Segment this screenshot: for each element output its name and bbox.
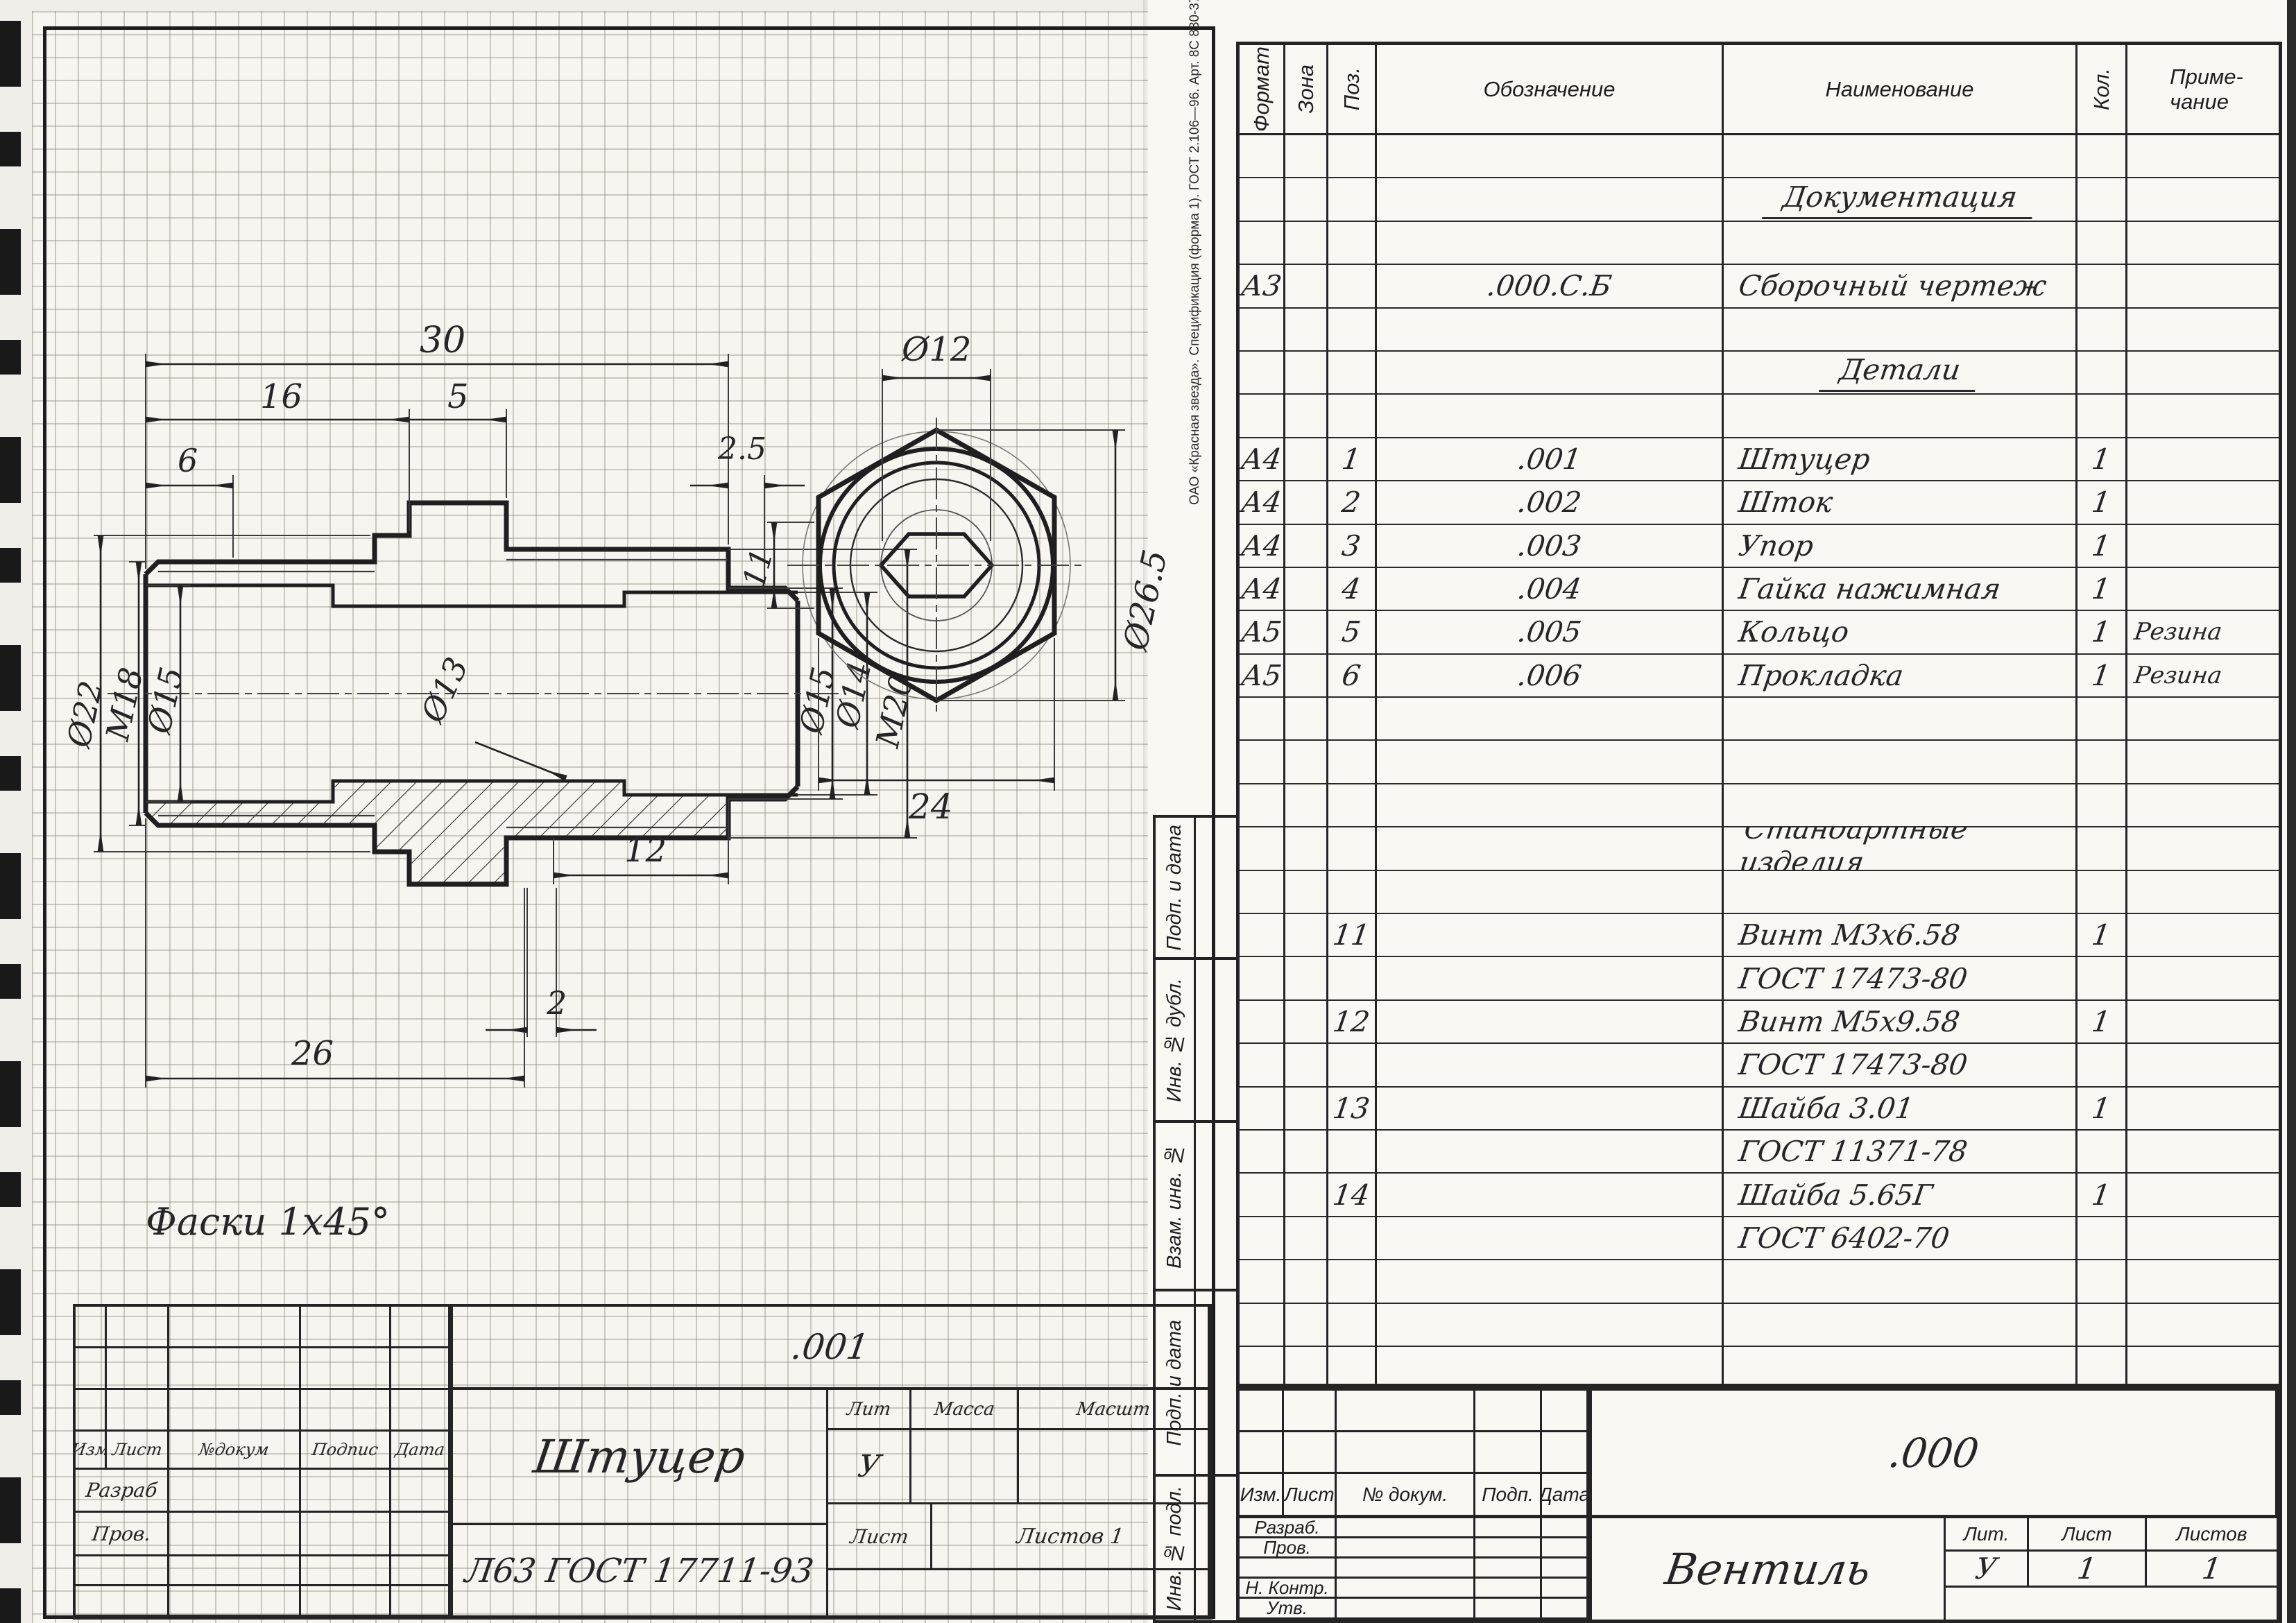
sig-row-cell	[1542, 1579, 1588, 1599]
spec-cell-designation-row12: .006	[1377, 655, 1724, 698]
lit-col-label: Лист	[2062, 1523, 2111, 1545]
spec-cell-name-row26	[1724, 1260, 2077, 1303]
lit-value: У	[828, 1430, 911, 1504]
sig-row-cell	[1337, 1518, 1475, 1538]
spec-value: 1	[2090, 443, 2113, 476]
spec-cell-format-row18	[1240, 914, 1285, 957]
spec-cell-zone-row3	[1285, 265, 1328, 308]
spec-cell-qty-row23	[2077, 1131, 2127, 1174]
spec-cell-qty-row6	[2077, 395, 2127, 438]
spec-cell-note-row25	[2127, 1217, 2282, 1260]
prop-col-label: Масса	[933, 1399, 996, 1420]
sig-col: №докум	[169, 1432, 301, 1470]
spec-cell-pos-row12: 6	[1328, 655, 1377, 698]
dimension-lines	[101, 364, 907, 1079]
spec-cell-note-row14	[2127, 741, 2282, 784]
spec-value: .003	[1515, 529, 1583, 563]
rev-cell	[301, 1348, 391, 1390]
spec-cell-zone-row1	[1285, 178, 1328, 221]
spec-cell-designation-row22	[1377, 1088, 1724, 1131]
spec-value: 1	[2090, 529, 2113, 563]
margin-label-cell: Подп. и дата	[1156, 1291, 1196, 1474]
material-cell: Л63 ГОСТ 17711-93	[450, 1525, 828, 1617]
title-block-left: ИзмЛист№докумПодписДатаРазрабПров..001Шт…	[73, 1304, 1213, 1620]
spec-cell-note-row18	[2127, 914, 2282, 957]
spec-cell-name-row17	[1724, 871, 2077, 914]
spec-cell-zone-row24	[1285, 1174, 1328, 1217]
spec-cell-qty-row7: 1	[2077, 438, 2127, 481]
spec-cell-pos-row7: 1	[1328, 438, 1377, 481]
spec-cell-name-row4	[1724, 309, 2077, 352]
spec-cell-designation-row16	[1377, 827, 1724, 870]
sig-row-cell	[169, 1470, 301, 1513]
spec-cell-qty-row8: 1	[2077, 481, 2127, 524]
rev-cell	[1475, 1391, 1542, 1432]
spec-cell-name-row12: Прокладка	[1724, 655, 2077, 698]
margin-label: Взам. инв. №	[1163, 1144, 1186, 1269]
sig-col-label: №докум	[198, 1440, 270, 1459]
sig-col-label: Дата	[394, 1440, 446, 1459]
scanned-engineering-drawing: { "stamp_text": "ОАО «Красная звезда». С…	[0, 0, 2296, 1623]
margin-label: Подп. и дата	[1163, 825, 1186, 951]
spec-cell-designation-row26	[1377, 1260, 1724, 1303]
spec-cell-designation-row17	[1377, 871, 1724, 914]
spec-cell-note-row10	[2127, 568, 2282, 611]
spec-cell-qty-row3	[2077, 265, 2127, 308]
spec-cell-pos-row1	[1328, 178, 1377, 221]
spec-cell-zone-row11	[1285, 611, 1328, 654]
spec-cell-zone-row20	[1285, 1001, 1328, 1044]
spec-cell-note-row7	[2127, 438, 2282, 481]
spec-cell-name-row1: Документация	[1724, 178, 2077, 221]
sig-row-label: Разраб	[76, 1470, 169, 1513]
spec-cell-designation-row3: .000.С.Б	[1377, 265, 1724, 308]
spec-cell-format-row10: А4	[1240, 568, 1285, 611]
spec-cell-designation-row7: .001	[1377, 438, 1724, 481]
spec-cell-note-row15	[2127, 784, 2282, 827]
part-name-cell-label: Штуцер	[531, 1430, 748, 1484]
spec-cell-pos-row23	[1328, 1131, 1377, 1174]
sig-row-cell	[1542, 1558, 1588, 1579]
spec-cell-pos-row2	[1328, 222, 1377, 265]
spec-value: .006	[1515, 659, 1583, 692]
spec-cell-qty-row10: 1	[2077, 568, 2127, 611]
spec-section-title: Документация	[1762, 180, 2037, 219]
margin-section: Взам. инв. №	[1156, 1123, 1237, 1291]
spec-value: 1	[2090, 1005, 2113, 1038]
rev-cell	[301, 1307, 391, 1348]
spec-cell-designation-row21	[1377, 1044, 1724, 1087]
spec-value: 1	[2090, 1092, 2113, 1125]
spec-cell-note-row0	[2127, 135, 2282, 178]
spec-cell-name-row28	[1724, 1347, 2077, 1387]
spec-cell-designation-row9: .003	[1377, 525, 1724, 568]
spec-cell-pos-row11: 5	[1328, 611, 1377, 654]
spec-cell-pos-row0	[1328, 135, 1377, 178]
product-cell: Вентиль	[1588, 1518, 1946, 1620]
sig-row-cell	[1542, 1518, 1588, 1538]
spec-cell-qty-row26	[2077, 1260, 2127, 1303]
lit-value-label: 1	[2200, 1552, 2224, 1586]
spec-value: .002	[1515, 486, 1583, 519]
sig-row-cell	[301, 1513, 391, 1556]
spec-cell-designation-row20	[1377, 1001, 1724, 1044]
massa-value	[911, 1430, 1019, 1504]
spec-cell-zone-row2	[1285, 222, 1328, 265]
rev-cell	[391, 1348, 450, 1390]
sig-row-label: Пров.	[1240, 1538, 1337, 1558]
sig-col-label: Лист	[1284, 1484, 1334, 1506]
lit-col: Лист	[2029, 1518, 2147, 1552]
spec-cell-note-row4	[2127, 309, 2282, 352]
spec-cell-format-row28	[1240, 1347, 1285, 1387]
sig-row-label: Н. Контр.	[1240, 1579, 1337, 1599]
spec-cell-qty-row2	[2077, 222, 2127, 265]
spec-value: ГОСТ 11371-78	[1737, 1135, 1970, 1168]
spec-cell-qty-row13	[2077, 698, 2127, 741]
margin-label-cell: Взам. инв. №	[1156, 1123, 1196, 1289]
spec-cell-format-row15	[1240, 784, 1285, 827]
spec-cell-designation-row11: .005	[1377, 611, 1724, 654]
sig-row-cell	[169, 1556, 301, 1586]
spec-value: .004	[1515, 572, 1583, 606]
sig-col: Подп.	[1475, 1474, 1542, 1518]
spec-header-label: Наименование	[1826, 77, 1974, 102]
spec-section-title: Детали	[1819, 353, 1980, 392]
lit-value: У	[1946, 1552, 2029, 1588]
spec-value: 13	[1331, 1092, 1372, 1125]
spec-cell-note-row11: Резина	[2127, 611, 2282, 654]
spec-cell-designation-row2	[1377, 222, 1724, 265]
spec-cell-name-row24: Шайба 5.65Г	[1724, 1174, 2077, 1217]
sig-row-cell	[169, 1586, 301, 1617]
sheets-cell-label: Листов 1	[1015, 1525, 1125, 1549]
lit-value: 1	[2029, 1552, 2147, 1588]
spec-value: .000.С.Б	[1485, 269, 1614, 302]
spec-cell-name-row13	[1724, 698, 2077, 741]
spec-cell-zone-row13	[1285, 698, 1328, 741]
spec-cell-name-row25: ГОСТ 6402-70	[1724, 1217, 2077, 1260]
dim-2: 2	[546, 984, 567, 1022]
sig-col: Лист	[1284, 1474, 1337, 1518]
sig-row-cell	[301, 1586, 391, 1617]
dim-m20: М20	[868, 671, 920, 752]
spec-cell-zone-row15	[1285, 784, 1328, 827]
spec-section-title: Стандартные изделия	[1724, 827, 2077, 870]
spec-value: А5	[1240, 615, 1283, 649]
spec-cell-note-row5	[2127, 352, 2282, 395]
lit-value-label: 1	[2075, 1552, 2099, 1586]
rev-cell	[169, 1307, 301, 1348]
spec-cell-note-row28	[2127, 1347, 2282, 1387]
spec-value: А5	[1240, 659, 1283, 692]
spec-cell-designation-row5	[1377, 352, 1724, 395]
spec-cell-format-row27	[1240, 1304, 1285, 1347]
spec-value: Сборочный чертеж	[1737, 269, 2049, 302]
prop-col: Масса	[911, 1390, 1019, 1430]
spec-cell-zone-row22	[1285, 1088, 1328, 1131]
dim-d14: Ø14	[828, 658, 879, 732]
spec-cell-designation-row6	[1377, 395, 1724, 438]
spec-cell-pos-row15	[1328, 784, 1377, 827]
spec-cell-pos-row25	[1328, 1217, 1377, 1260]
spec-cell-designation-row19	[1377, 957, 1724, 1000]
sig-col-label: Изм.	[1240, 1484, 1282, 1506]
spec-header-label: Приме- чание	[2170, 65, 2243, 114]
spec-cell-designation-row10: .004	[1377, 568, 1724, 611]
spec-value: ГОСТ 17473-80	[1737, 962, 1970, 995]
spec-value: 14	[1331, 1178, 1372, 1212]
lit-col: Лит.	[1946, 1518, 2029, 1552]
sig-col: Подпис	[301, 1432, 391, 1470]
rev-cell	[169, 1348, 301, 1390]
spec-cell-zone-row18	[1285, 914, 1328, 957]
spec-header-label: Кол.	[2089, 68, 2114, 110]
lit-col-label: Лит.	[1964, 1523, 2010, 1545]
spec-cell-pos-row26	[1328, 1260, 1377, 1303]
spec-cell-format-row24	[1240, 1174, 1285, 1217]
sig-row-cell	[1475, 1558, 1542, 1579]
spec-cell-name-row14	[1724, 741, 2077, 784]
spec-cell-format-row7: А4	[1240, 438, 1285, 481]
spec-cell-qty-row14	[2077, 741, 2127, 784]
rev-cell	[391, 1307, 450, 1348]
spec-cell-note-row3	[2127, 265, 2282, 308]
spec-value: А4	[1240, 486, 1283, 519]
spec-cell-name-row6	[1724, 395, 2077, 438]
spec-value: ГОСТ 17473-80	[1737, 1048, 1970, 1081]
designation-cell: .001	[450, 1307, 1210, 1390]
spec-cell-pos-row13	[1328, 698, 1377, 741]
spec-cell-zone-row4	[1285, 309, 1328, 352]
margin-label-cell: Инв. № подл.	[1156, 1477, 1196, 1620]
sig-row-cell	[1337, 1558, 1475, 1579]
spec-value: 1	[2090, 615, 2113, 649]
spec-cell-qty-row18: 1	[2077, 914, 2127, 957]
spec-cell-zone-row14	[1285, 741, 1328, 784]
spec-cell-format-row3: А3	[1240, 265, 1285, 308]
rev-cell	[1337, 1432, 1475, 1474]
spec-cell-qty-row22: 1	[2077, 1088, 2127, 1131]
spec-cell-pos-row24: 14	[1328, 1174, 1377, 1217]
sig-col: Лист	[107, 1432, 169, 1470]
spec-cell-name-row7: Штуцер	[1724, 438, 2077, 481]
spec-value: 1	[2090, 486, 2113, 519]
lit-col: Листов	[2147, 1518, 2279, 1552]
spec-cell-qty-row4	[2077, 309, 2127, 352]
rev-cell	[107, 1390, 169, 1432]
spec-cell-name-row21: ГОСТ 17473-80	[1724, 1044, 2077, 1087]
spec-cell-qty-row17	[2077, 871, 2127, 914]
rev-cell	[107, 1307, 169, 1348]
spec-value: Резина	[2132, 662, 2224, 689]
spec-cell-pos-row28	[1328, 1347, 1377, 1387]
rev-cell	[1284, 1432, 1337, 1474]
spec-cell-designation-row8: .002	[1377, 481, 1724, 524]
scanner-right-edge	[2287, 0, 2296, 1623]
spec-cell-note-row1	[2127, 178, 2282, 221]
spec-cell-designation-row28	[1377, 1347, 1724, 1387]
rev-cell	[76, 1307, 107, 1348]
spec-value: 1	[2090, 572, 2113, 606]
designation-cell-label: .001	[789, 1327, 871, 1367]
spec-cell-designation-row24	[1377, 1174, 1724, 1217]
spec-cell-pos-row6	[1328, 395, 1377, 438]
dim-d13: Ø13	[413, 652, 476, 729]
spec-cell-qty-row11: 1	[2077, 611, 2127, 654]
spec-value: Резина	[2132, 618, 2224, 646]
spec-cell-zone-row19	[1285, 957, 1328, 1000]
spec-cell-note-row8	[2127, 481, 2282, 524]
rev-cell	[1240, 1432, 1284, 1474]
spec-cell-format-row21	[1240, 1044, 1285, 1087]
spec-cell-format-row25	[1240, 1217, 1285, 1260]
spec-cell-qty-row15	[2077, 784, 2127, 827]
spec-cell-name-row22: Шайба 3.01	[1724, 1088, 2077, 1131]
sig-row-cell	[1337, 1538, 1475, 1558]
spec-cell-zone-row26	[1285, 1260, 1328, 1303]
margin-section: Инв. № подл.	[1156, 1477, 1237, 1623]
rev-cell	[1475, 1432, 1542, 1474]
sig-row-cell	[391, 1586, 450, 1617]
spec-cell-zone-row21	[1285, 1044, 1328, 1087]
spec-cell-zone-row7	[1285, 438, 1328, 481]
margin-section: Подп. и дата	[1156, 818, 1237, 960]
spec-cell-format-row12: А5	[1240, 655, 1285, 698]
dim-12: 12	[624, 831, 667, 870]
sig-row-label-label: Утв.	[1267, 1599, 1308, 1619]
spec-cell-note-row12: Резина	[2127, 655, 2282, 698]
spec-cell-name-row0	[1724, 135, 2077, 178]
spec-header-designation: Обозначение	[1377, 45, 1724, 135]
sig-row-cell	[1475, 1518, 1542, 1538]
spec-value: 6	[1340, 659, 1363, 692]
spec-value: 1	[2090, 1178, 2113, 1212]
dim-d12: Ø12	[901, 330, 971, 369]
margin-section: Инв. № дубл.	[1156, 960, 1237, 1123]
spec-header-name: Наименование	[1724, 45, 2077, 135]
spec-cell-note-row24	[2127, 1174, 2282, 1217]
sig-row-cell	[1337, 1599, 1475, 1620]
spec-cell-note-row13	[2127, 698, 2282, 741]
spec-cell-note-row20	[2127, 1001, 2282, 1044]
spec-header-pos: Поз.	[1328, 45, 1377, 135]
dim-26: 26	[291, 1034, 334, 1073]
spec-cell-name-row8: Шток	[1724, 481, 2077, 524]
spec-cell-pos-row19	[1328, 957, 1377, 1000]
spec-cell-zone-row17	[1285, 871, 1328, 914]
dim-16: 16	[260, 377, 302, 416]
rev-cell	[1284, 1391, 1337, 1432]
spec-value: Упор	[1737, 529, 1816, 563]
margin-label: Инв. № подл.	[1163, 1486, 1186, 1611]
prop-col: Лит	[828, 1390, 911, 1430]
spec-cell-zone-row25	[1285, 1217, 1328, 1260]
sig-col-label: Подп.	[1482, 1484, 1534, 1506]
spec-header-label: Поз.	[1339, 67, 1364, 110]
spec-cell-format-row1	[1240, 178, 1285, 221]
spec-cell-designation-row1	[1377, 178, 1724, 221]
spec-cell-note-row21	[2127, 1044, 2282, 1087]
spec-value: .005	[1515, 615, 1583, 649]
sig-row-label-label: Разраб	[84, 1479, 158, 1502]
spec-cell-designation-row4	[1377, 309, 1724, 352]
spec-cell-pos-row4	[1328, 309, 1377, 352]
spec-cell-qty-row0	[2077, 135, 2127, 178]
spec-value: Винт М5х9.58	[1737, 1005, 1962, 1038]
spec-cell-pos-row18: 11	[1328, 914, 1377, 957]
spec-cell-format-row20	[1240, 1001, 1285, 1044]
spec-value: Шайба 5.65Г	[1737, 1178, 1935, 1212]
spec-cell-qty-row16	[2077, 827, 2127, 870]
spec-cell-designation-row25	[1377, 1217, 1724, 1260]
spec-cell-note-row6	[2127, 395, 2282, 438]
spec-cell-format-row9: А4	[1240, 525, 1285, 568]
spec-cell-qty-row27	[2077, 1304, 2127, 1347]
spec-value: ГОСТ 6402-70	[1737, 1221, 1952, 1255]
spec-value: 5	[1340, 615, 1363, 649]
spec-cell-pos-row8: 2	[1328, 481, 1377, 524]
dim-2_5: 2.5	[717, 431, 766, 467]
lit-value-label: У	[1973, 1552, 1999, 1586]
sheet-cell-label: Лист	[848, 1525, 909, 1548]
spec-cell-format-row22	[1240, 1088, 1285, 1131]
rev-cell	[391, 1390, 450, 1432]
prop-col-label: Лит	[846, 1399, 892, 1420]
sig-row-label: Пров.	[76, 1513, 169, 1556]
sig-col: № докум.	[1337, 1474, 1475, 1518]
spec-cell-qty-row5	[2077, 352, 2127, 395]
spec-header-label: Обозначение	[1484, 77, 1616, 102]
sig-row-label-label: Пров.	[1263, 1538, 1311, 1558]
spec-cell-designation-row14	[1377, 741, 1724, 784]
spec-cell-name-row27	[1724, 1304, 2077, 1347]
spec-cell-format-row0	[1240, 135, 1285, 178]
spec-cell-format-row17	[1240, 871, 1285, 914]
sig-col-label: Дата	[1542, 1484, 1588, 1506]
dim-6: 6	[178, 442, 198, 479]
spec-header-label: Формат	[1249, 46, 1274, 132]
spec-cell-pos-row9: 3	[1328, 525, 1377, 568]
spec-value: Штуцер	[1737, 443, 1872, 476]
lit-value: 1	[2147, 1552, 2279, 1588]
spec-value: Кольцо	[1737, 615, 1851, 649]
spec-cell-qty-row19	[2077, 957, 2127, 1000]
spec-header-label: Зона	[1294, 65, 1319, 114]
spec-cell-format-row19	[1240, 957, 1285, 1000]
title-block-right: Изм.Лист№ докум.Подп.ДатаРазраб.Пров.Н. …	[1236, 1387, 2282, 1623]
sig-col-label: Подпис	[311, 1440, 379, 1459]
material-cell-label: Л63 ГОСТ 17711-93	[463, 1552, 816, 1590]
spec-cell-pos-row14	[1328, 741, 1377, 784]
sig-row-cell	[391, 1513, 450, 1556]
spec-cell-zone-row0	[1285, 135, 1328, 178]
spec-header-zone: Зона	[1285, 45, 1328, 135]
product-cell-label: Вентиль	[1662, 1544, 1874, 1595]
sig-row-cell	[1542, 1538, 1588, 1558]
spec-cell-format-row5	[1240, 352, 1285, 395]
spec-value: 1	[1340, 443, 1363, 476]
spec-cell-pos-row10: 4	[1328, 568, 1377, 611]
sig-row-label: Разраб.	[1240, 1518, 1337, 1538]
spec-cell-format-row13	[1240, 698, 1285, 741]
spec-value: А3	[1240, 269, 1283, 302]
spec-cell-format-row11: А5	[1240, 611, 1285, 654]
spec-cell-qty-row21	[2077, 1044, 2127, 1087]
sig-col-label: № докум.	[1362, 1484, 1448, 1506]
spec-value: А4	[1240, 572, 1283, 606]
spec-cell-name-row23: ГОСТ 11371-78	[1724, 1131, 2077, 1174]
